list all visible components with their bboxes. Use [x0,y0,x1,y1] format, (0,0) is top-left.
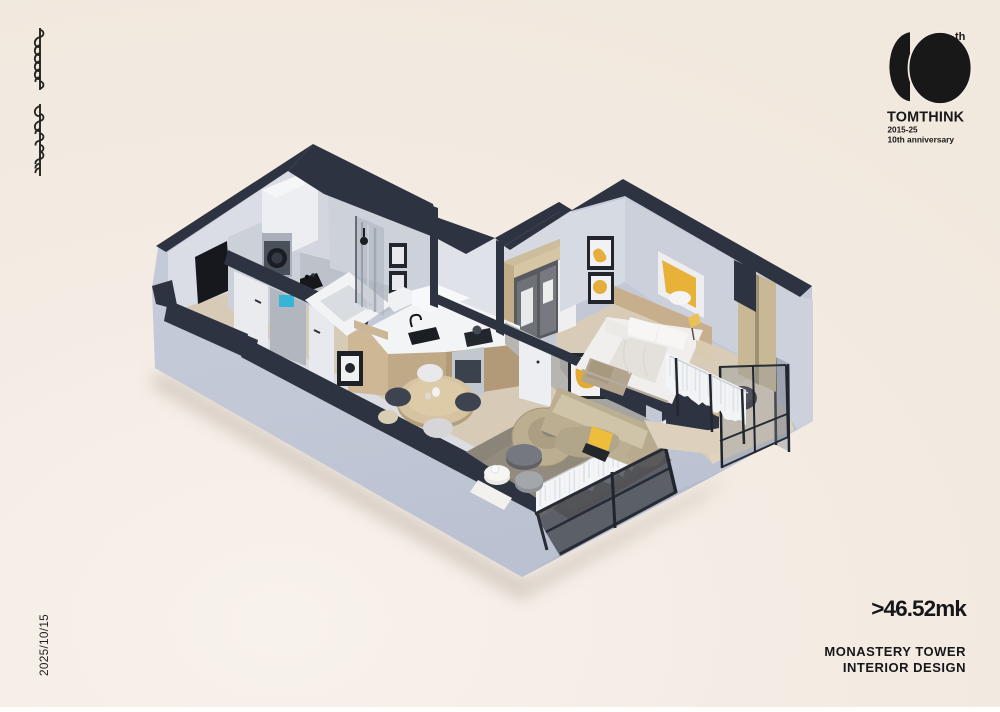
svg-text:th: th [955,31,966,43]
svg-text:TOMTHINK: TOMTHINK [887,110,965,126]
svg-text:2025/10/15: 2025/10/15 [37,614,51,676]
svg-text:10th anniversary: 10th anniversary [888,135,955,145]
svg-text:2015-25: 2015-25 [888,126,918,135]
